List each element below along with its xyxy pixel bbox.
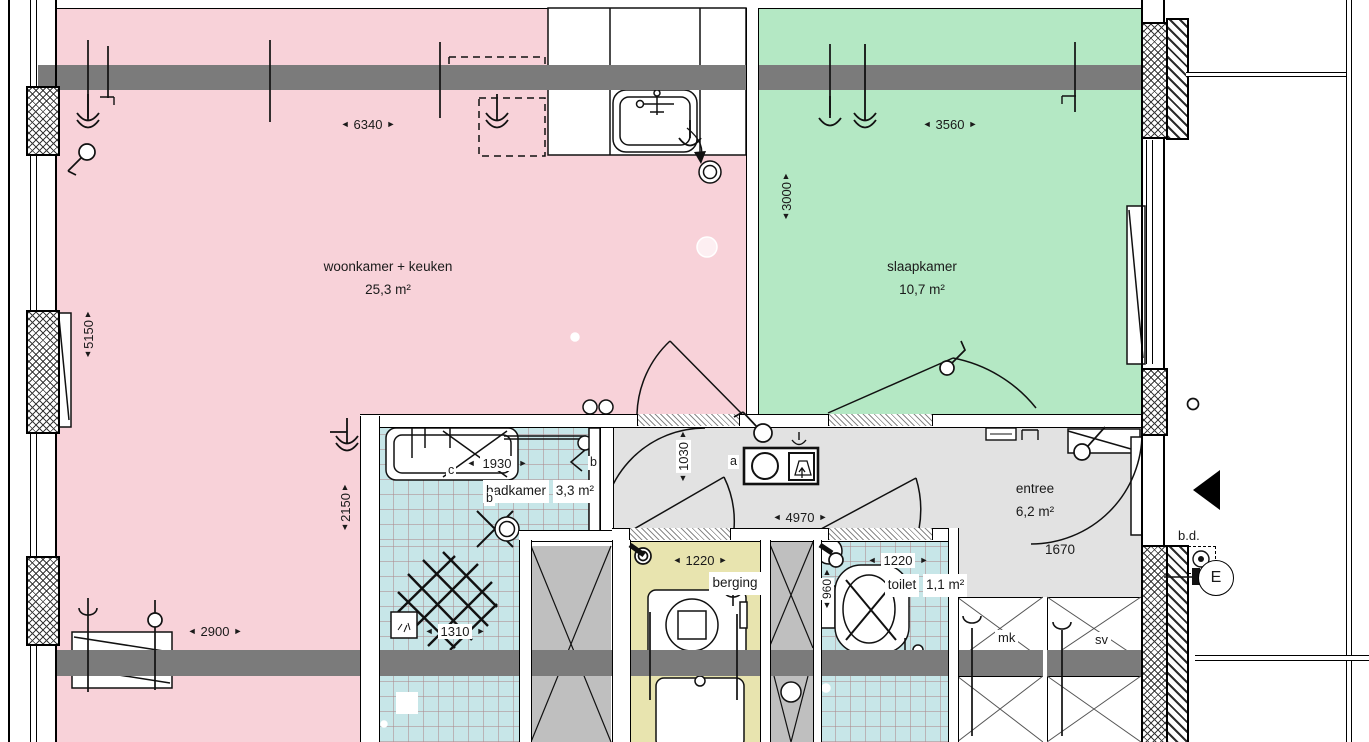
dim-entree-width: 1670: [1010, 539, 1110, 562]
dim-badkamer-width: ◄ 1930 ►: [437, 456, 557, 471]
entrance-arrow-icon: [1193, 470, 1220, 510]
dim-badkamer-zone-depth: ▲ 2150 ▼: [325, 483, 365, 532]
gallery-edge-bottom: [1195, 655, 1369, 661]
dim-arrow-down-icon: ▼: [84, 350, 93, 359]
dim-berging-width: ◄ 1220 ►: [640, 553, 760, 568]
shaft-b-duct: [781, 682, 801, 702]
dim-arrow-up-icon: ▲: [823, 568, 832, 577]
window-left-4: [30, 642, 37, 742]
window-left-3: [30, 430, 37, 556]
wall-berging-left: [612, 540, 631, 742]
room-label-woonkamer: woonkamer + keuken 25,3 m²: [288, 256, 488, 302]
dim-arrow-right-icon: ►: [818, 513, 827, 522]
dim-arrow-left-icon: ◄: [923, 120, 932, 129]
dim-arrow-up-icon: ▲: [341, 483, 350, 492]
slab-band-bottom: [55, 650, 1143, 676]
dim-arrow-up-icon: ▲: [782, 172, 791, 181]
appliance-dashed-top: [449, 57, 545, 65]
socket-pair-2: [599, 400, 613, 414]
dim-arrow-right-icon: ►: [518, 459, 527, 468]
window-right: [1146, 140, 1153, 364]
dim-arrow-up-icon: ▲: [679, 430, 688, 439]
appliance-dashed: [479, 98, 545, 156]
doorsill-slaapkamer: [828, 414, 933, 426]
wall-center-vertical: [746, 8, 759, 414]
dim-woonkamer-width: ◄ 6340 ►: [308, 117, 428, 132]
dim-arrow-left-icon: ◄: [773, 513, 782, 522]
dim-arrow-right-icon: ►: [718, 556, 727, 565]
room-label-slaapkamer: slaapkamer 10,7 m²: [822, 256, 1022, 302]
dim-toilet-depth: ▲ 960 ▼: [812, 568, 842, 610]
wall-berging-right: [760, 540, 771, 742]
dim-arrow-right-icon: ►: [919, 556, 928, 565]
dim-arrow-left-icon: ◄: [341, 120, 350, 129]
window-left-1: [30, 0, 37, 86]
wall-mk-sv-divider: [1043, 597, 1047, 742]
wall-left-block-2: [26, 310, 60, 434]
wall-right-block-2: [1141, 368, 1168, 436]
dim-slaapkamer-depth: ▲ 3000 ▼: [766, 172, 806, 221]
dim-arrow-right-icon: ►: [476, 627, 485, 636]
shaft-a-cross: [531, 546, 611, 742]
wall-shaft-a-top: [519, 530, 612, 542]
kitchen-socket: [699, 161, 721, 183]
dim-arrow-down-icon: ▼: [679, 474, 688, 483]
dim-arrow-left-icon: ◄: [673, 556, 682, 565]
dim-arrow-left-icon: ◄: [868, 556, 877, 565]
wall-left-outer-line: [8, 0, 10, 742]
door-berging: [634, 477, 734, 529]
party-wall-bottom-right: [1166, 545, 1189, 742]
washer-2: [656, 678, 744, 742]
dim-woonkamer-bottom: ◄ 2900 ►: [155, 624, 275, 639]
dim-arrow-down-icon: ▼: [341, 523, 350, 532]
room-label-entree: entree 6,2 m²: [985, 478, 1085, 524]
dim-hall-width: ◄ 4970 ►: [740, 510, 860, 525]
party-wall-top-right: [1166, 18, 1189, 140]
wall-shaft-a-left: [519, 540, 532, 742]
gallery-edge-vertical: [1346, 0, 1352, 742]
shaft-b-cross: [769, 542, 813, 648]
doorsill-toilet: [828, 528, 933, 540]
wall-badkamer-right: [600, 428, 614, 540]
gallery-edge-top: [1186, 72, 1346, 77]
dim-slaapkamer-width: ◄ 3560 ►: [890, 117, 1010, 132]
dim-arrow-up-icon: ▲: [84, 310, 93, 319]
room-label-berging: berging: [680, 572, 790, 595]
dim-arrow-right-icon: ►: [968, 120, 977, 129]
socket-pair-1: [583, 400, 597, 414]
dim-arrow-left-icon: ◄: [425, 627, 434, 636]
dim-arrow-down-icon: ▼: [782, 212, 791, 221]
wall-badkamer-left: [360, 416, 380, 742]
dim-arrow-left-icon: ◄: [467, 459, 476, 468]
dim-woonkamer-depth: ▲ 5150 ▼: [68, 310, 108, 359]
floor-plan: E b.d. woonkamer + keuken 25,3 m² slaapk…: [0, 0, 1369, 742]
door-woonkamer: [637, 341, 742, 414]
dim-shower-width: ◄ 1310 ►: [395, 624, 515, 639]
wall-right-block-3: [1141, 545, 1168, 742]
mk-label: mk: [995, 630, 1018, 645]
dim-hall-depth: ▲ 1030 ▼: [663, 430, 703, 483]
doorsill-berging: [629, 528, 731, 540]
wall-left-block-1: [26, 86, 60, 156]
window-left-2: [30, 152, 37, 310]
room-label-badkamer: badkamer 3,3 m²: [480, 480, 600, 503]
door-slaapkamer: [828, 358, 1036, 413]
dim-arrow-right-icon: ►: [386, 120, 395, 129]
dim-toilet-width: ◄ 1220 ►: [838, 553, 958, 568]
kitchen-sink-outer: [613, 90, 697, 152]
meter-symbol: E: [1198, 560, 1234, 596]
bd-label: b.d.: [1178, 528, 1200, 543]
letter-a: a: [728, 455, 739, 469]
dim-arrow-left-icon: ◄: [188, 627, 197, 636]
tile-patch: [396, 692, 418, 714]
letter-b1: b: [484, 492, 495, 506]
doorsill-woonkamer: [637, 414, 740, 426]
room-label-toilet: toilet 1,1 m²: [876, 574, 976, 597]
slab-band-top: [38, 65, 1142, 90]
wall-hall-top: [360, 414, 1143, 428]
dim-arrow-right-icon: ►: [233, 627, 242, 636]
letter-b2: b: [588, 456, 599, 470]
dim-arrow-down-icon: ▼: [823, 601, 832, 610]
wall-left-block-3: [26, 556, 60, 646]
wall-right-block-1: [1141, 22, 1168, 139]
sv-label: sv: [1092, 632, 1111, 647]
